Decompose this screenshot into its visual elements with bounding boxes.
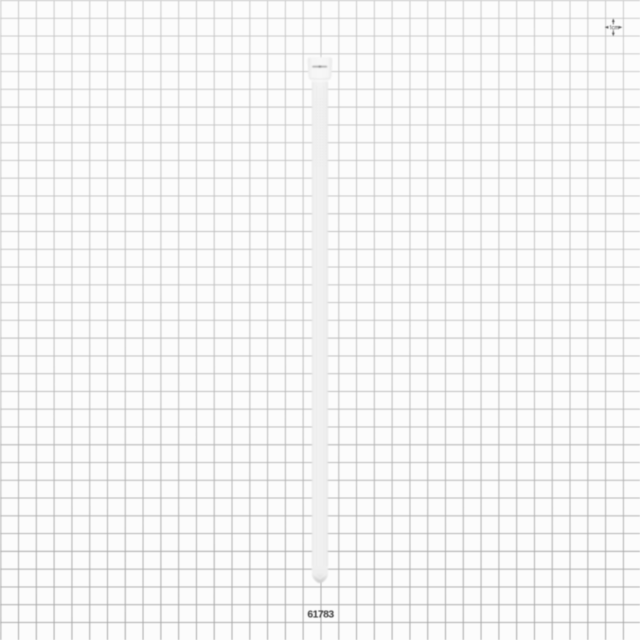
svg-text:61783: 61783 <box>307 610 334 621</box>
